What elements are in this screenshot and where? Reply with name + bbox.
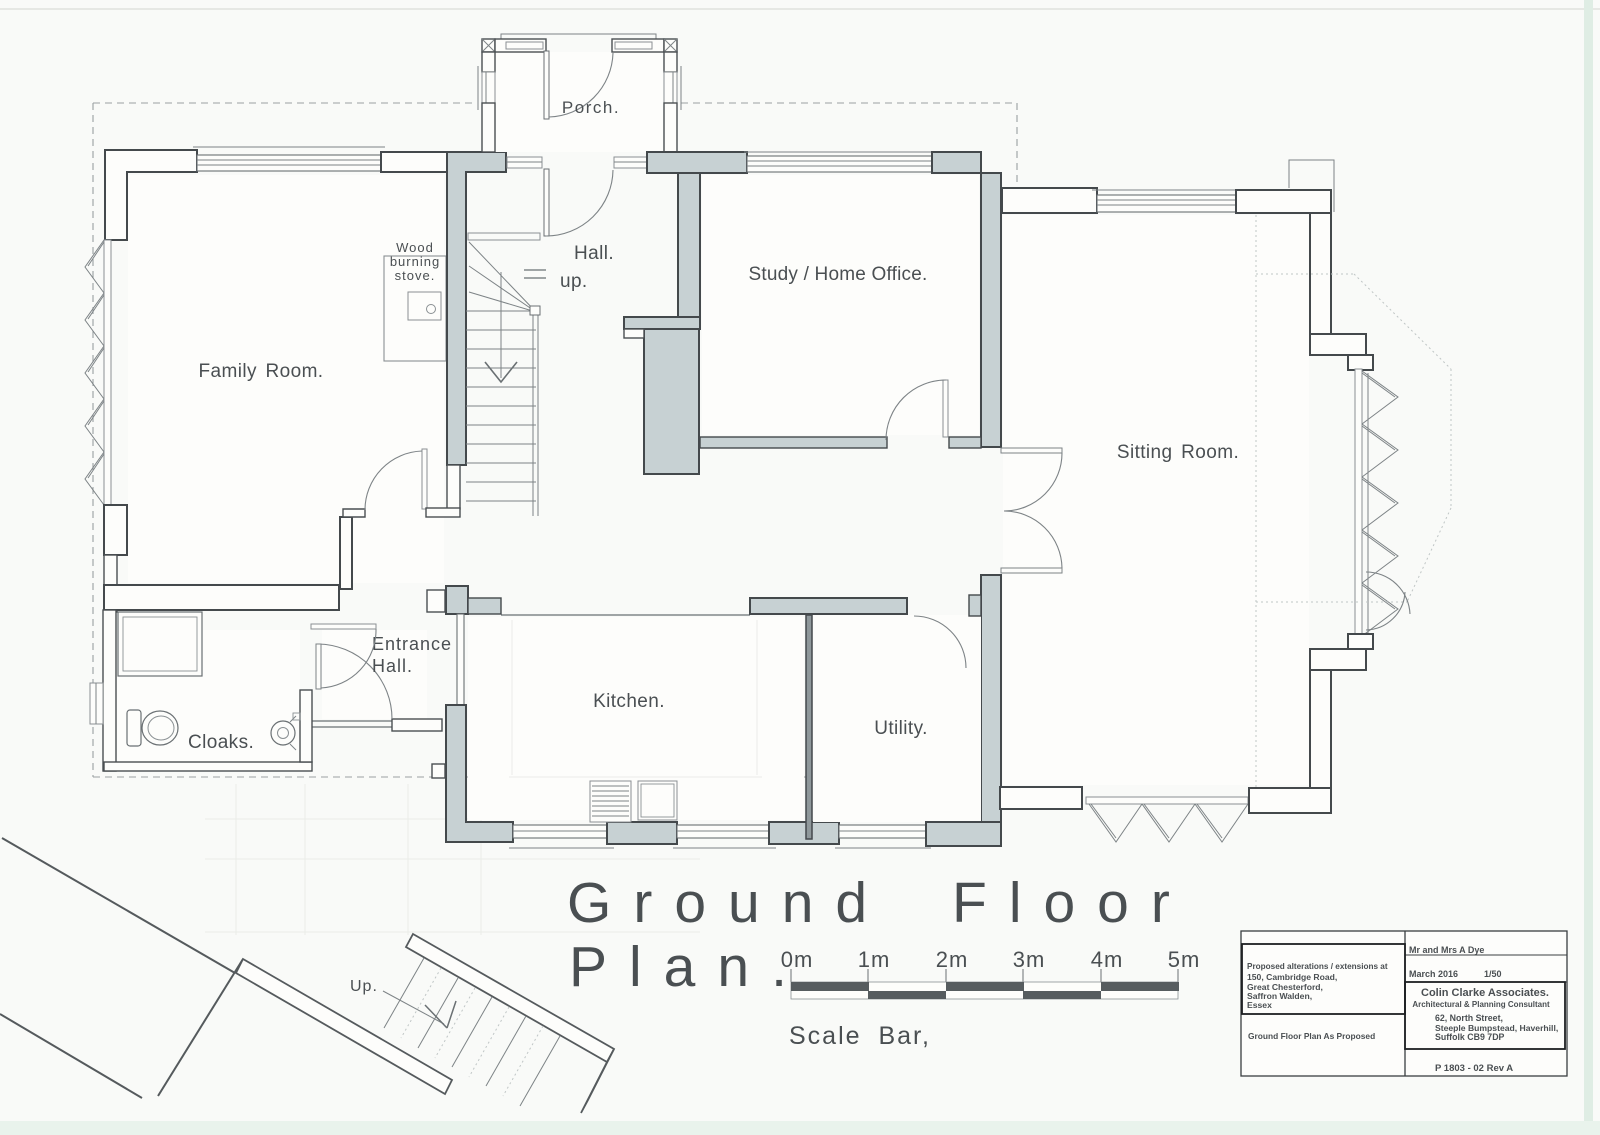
svg-text:Proposed alterations / extensi: Proposed alterations / extensions at [1247,962,1388,971]
svg-text:Mr and Mrs A Dye: Mr and Mrs A Dye [1409,945,1484,955]
svg-text:Sitting Room.: Sitting Room. [1117,442,1239,463]
svg-text:Cloaks.: Cloaks. [188,732,254,753]
svg-text:150, Cambridge Road,: 150, Cambridge Road, [1247,972,1337,982]
svg-text:62, North Street,: 62, North Street, [1435,1013,1503,1023]
svg-text:March 2016: March 2016 [1409,969,1458,979]
svg-text:Plan.: Plan. [569,935,809,999]
svg-text:burning: burning [390,254,440,269]
svg-text:Porch.: Porch. [562,98,620,117]
svg-text:Kitchen.: Kitchen. [593,691,665,712]
svg-text:up.: up. [560,271,588,292]
svg-text:Family Room.: Family Room. [199,361,324,382]
svg-text:2m: 2m [936,947,969,972]
svg-text:Study / Home Office.: Study / Home Office. [749,264,928,285]
svg-text:Utility.: Utility. [874,718,928,739]
svg-text:Entrance: Entrance [372,634,452,654]
svg-text:Suffolk CB9 7DP: Suffolk CB9 7DP [1435,1032,1505,1042]
svg-text:Architectural & Planning Consu: Architectural & Planning Consultant [1412,1000,1550,1009]
svg-text:Ground: Ground [567,871,889,935]
svg-text:4m: 4m [1091,947,1124,972]
svg-text:Hall.: Hall. [372,656,413,676]
svg-text:Hall.: Hall. [574,243,614,264]
svg-text:5m: 5m [1168,947,1201,972]
svg-text:0m: 0m [781,947,814,972]
svg-text:Scale Bar,: Scale Bar, [789,1022,931,1050]
svg-text:Essex: Essex [1247,1000,1272,1010]
svg-text:Floor: Floor [952,871,1192,935]
svg-text:Up.: Up. [350,978,378,995]
svg-text:Wood: Wood [396,240,434,255]
svg-text:1/50: 1/50 [1484,969,1502,979]
svg-text:Colin Clarke Associates.: Colin Clarke Associates. [1421,987,1549,999]
svg-text:Ground Floor Plan As Proposed: Ground Floor Plan As Proposed [1248,1031,1375,1041]
svg-text:stove.: stove. [395,268,436,283]
svg-text:P 1803 - 02 Rev A: P 1803 - 02 Rev A [1435,1063,1513,1074]
svg-text:3m: 3m [1013,947,1046,972]
svg-text:1m: 1m [858,947,891,972]
